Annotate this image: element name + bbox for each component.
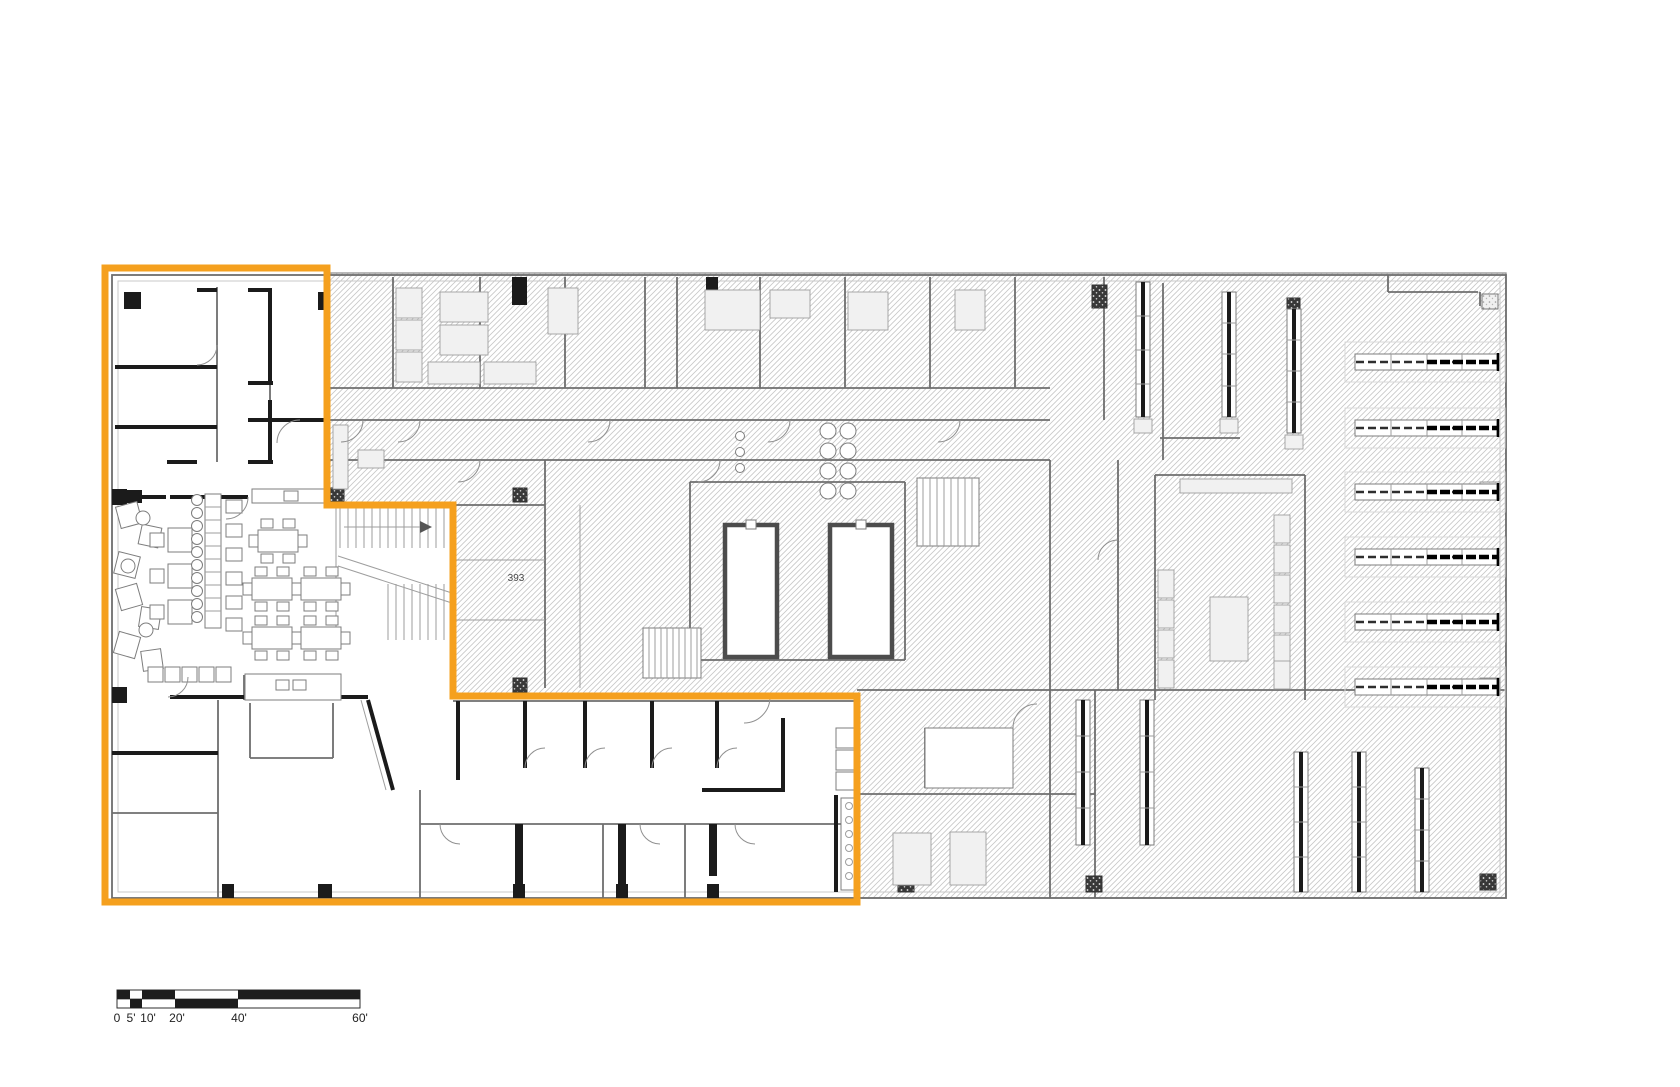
- scale-bar: 0 5' 10' 20' 40' 60': [114, 990, 368, 1025]
- room-number-label: 393: [508, 573, 525, 584]
- elevator-shaft: [830, 525, 892, 657]
- floor-plan-drawing: 393 0 5' 10' 20' 40' 60': [0, 0, 1680, 1087]
- scale-tick-40: 40': [231, 1011, 247, 1025]
- lounge-furniture: [113, 494, 350, 682]
- dining-tables: [243, 519, 350, 660]
- elevator-shaft: [725, 525, 777, 657]
- floor-plan-canvas: 393 0 5' 10' 20' 40' 60': [0, 0, 1680, 1087]
- banquette-seating: [192, 494, 243, 631]
- scale-tick-5: 5': [127, 1011, 136, 1025]
- conference-glazing: [925, 728, 1013, 788]
- main-stair: [338, 506, 455, 640]
- scale-tick-60: 60': [352, 1011, 368, 1025]
- scale-tick-0: 0: [114, 1011, 121, 1025]
- scale-tick-20: 20': [169, 1011, 185, 1025]
- scale-tick-10: 10': [140, 1011, 156, 1025]
